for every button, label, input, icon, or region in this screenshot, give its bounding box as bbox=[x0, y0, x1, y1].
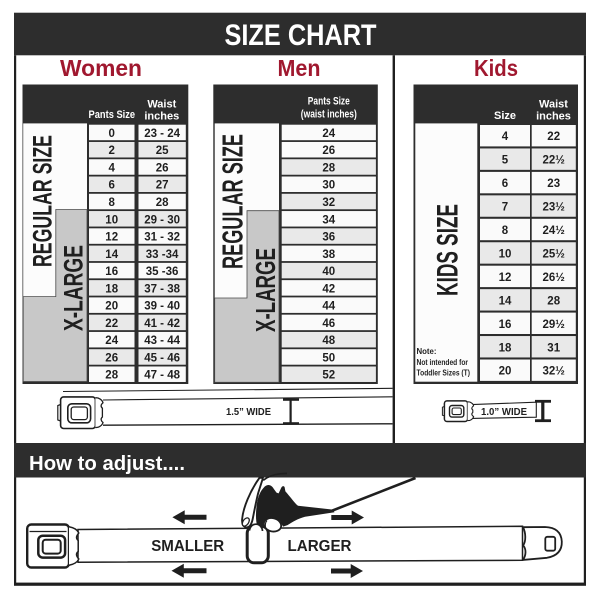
svg-text:32½: 32½ bbox=[543, 366, 566, 378]
svg-text:18: 18 bbox=[105, 283, 118, 295]
svg-text:X-LARGE: X-LARGE bbox=[59, 245, 89, 331]
svg-text:X-LARGE: X-LARGE bbox=[250, 248, 281, 332]
svg-text:5: 5 bbox=[502, 155, 509, 167]
svg-text:Note:: Note: bbox=[417, 346, 437, 356]
svg-text:SIZE CHART: SIZE CHART bbox=[225, 19, 377, 52]
svg-text:39 - 40: 39 - 40 bbox=[144, 301, 180, 313]
svg-text:inches: inches bbox=[144, 111, 179, 123]
svg-text:14: 14 bbox=[499, 295, 512, 307]
svg-text:28: 28 bbox=[547, 295, 560, 307]
svg-text:26: 26 bbox=[156, 162, 169, 174]
svg-text:40: 40 bbox=[322, 266, 335, 278]
svg-text:41 - 42: 41 - 42 bbox=[144, 318, 180, 330]
svg-text:24: 24 bbox=[105, 335, 118, 347]
svg-text:35 -36: 35 -36 bbox=[146, 266, 179, 278]
svg-text:32: 32 bbox=[322, 197, 335, 209]
svg-text:16: 16 bbox=[499, 319, 512, 331]
svg-text:29½: 29½ bbox=[543, 319, 566, 331]
svg-text:23 - 24: 23 - 24 bbox=[144, 128, 180, 140]
svg-text:8: 8 bbox=[108, 197, 115, 209]
svg-text:REGULAR SIZE: REGULAR SIZE bbox=[27, 135, 57, 267]
svg-text:14: 14 bbox=[105, 249, 118, 261]
svg-text:SMALLER: SMALLER bbox=[151, 538, 224, 555]
svg-text:4: 4 bbox=[502, 131, 509, 143]
svg-text:31 - 32: 31 - 32 bbox=[144, 232, 180, 244]
svg-text:22½: 22½ bbox=[543, 155, 566, 167]
svg-text:Waist: Waist bbox=[147, 99, 176, 111]
svg-text:28: 28 bbox=[156, 197, 169, 209]
svg-text:23½: 23½ bbox=[543, 202, 566, 214]
svg-text:28: 28 bbox=[105, 370, 118, 382]
svg-text:26: 26 bbox=[322, 145, 335, 157]
svg-text:16: 16 bbox=[105, 266, 118, 278]
svg-text:LARGER: LARGER bbox=[288, 538, 352, 555]
svg-text:27: 27 bbox=[156, 180, 169, 192]
svg-text:44: 44 bbox=[322, 301, 335, 313]
svg-text:43 - 44: 43 - 44 bbox=[144, 335, 180, 347]
svg-text:Kids: Kids bbox=[474, 55, 518, 81]
svg-text:24½: 24½ bbox=[543, 225, 566, 237]
svg-text:Toddler Sizes (T): Toddler Sizes (T) bbox=[417, 367, 471, 377]
svg-text:22: 22 bbox=[547, 131, 560, 143]
svg-text:36: 36 bbox=[322, 232, 335, 244]
svg-text:8: 8 bbox=[502, 225, 509, 237]
svg-text:33 -34: 33 -34 bbox=[146, 249, 179, 261]
svg-text:26: 26 bbox=[105, 352, 118, 364]
svg-text:7: 7 bbox=[502, 202, 508, 214]
svg-text:10: 10 bbox=[499, 248, 512, 260]
svg-text:0: 0 bbox=[108, 128, 114, 140]
svg-text:24: 24 bbox=[322, 128, 335, 140]
svg-text:12: 12 bbox=[499, 272, 512, 284]
svg-text:20: 20 bbox=[499, 366, 512, 378]
svg-text:10: 10 bbox=[105, 214, 118, 226]
svg-text:48: 48 bbox=[322, 335, 335, 347]
svg-text:REGULAR SIZE: REGULAR SIZE bbox=[218, 134, 250, 269]
svg-text:KIDS SIZE: KIDS SIZE bbox=[432, 204, 465, 296]
svg-text:1.0” WIDE: 1.0” WIDE bbox=[481, 406, 527, 418]
svg-text:How to adjust....: How to adjust.... bbox=[29, 453, 185, 475]
svg-text:Waist: Waist bbox=[539, 99, 568, 111]
svg-text:25½: 25½ bbox=[543, 248, 566, 260]
svg-text:Pants Size: Pants Size bbox=[89, 109, 136, 121]
svg-text:18: 18 bbox=[499, 342, 512, 354]
svg-text:20: 20 bbox=[105, 301, 118, 313]
svg-text:46: 46 bbox=[322, 318, 335, 330]
svg-text:Men: Men bbox=[278, 55, 321, 81]
svg-text:26½: 26½ bbox=[543, 272, 566, 284]
svg-text:34: 34 bbox=[322, 214, 335, 226]
svg-text:52: 52 bbox=[322, 370, 335, 382]
svg-text:Pants Size: Pants Size bbox=[308, 95, 350, 107]
svg-text:4: 4 bbox=[108, 162, 115, 174]
svg-text:47 - 48: 47 - 48 bbox=[144, 370, 180, 382]
svg-text:inches: inches bbox=[536, 111, 571, 123]
svg-text:45 - 46: 45 - 46 bbox=[144, 352, 180, 364]
svg-text:2: 2 bbox=[108, 145, 114, 157]
svg-text:42: 42 bbox=[322, 283, 335, 295]
svg-text:37 - 38: 37 - 38 bbox=[144, 283, 180, 295]
svg-text:28: 28 bbox=[322, 162, 335, 174]
svg-text:Size: Size bbox=[494, 110, 516, 122]
svg-text:6: 6 bbox=[108, 180, 114, 192]
svg-text:29 - 30: 29 - 30 bbox=[144, 214, 180, 226]
svg-text:6: 6 bbox=[502, 178, 508, 190]
svg-text:1.5” WIDE: 1.5” WIDE bbox=[226, 406, 271, 418]
svg-text:Not intended for: Not intended for bbox=[417, 357, 469, 367]
svg-text:38: 38 bbox=[322, 249, 335, 261]
svg-text:23: 23 bbox=[547, 178, 560, 190]
svg-text:Women: Women bbox=[60, 55, 142, 81]
svg-text:(waist inches): (waist inches) bbox=[301, 109, 357, 121]
svg-text:50: 50 bbox=[322, 352, 335, 364]
svg-text:30: 30 bbox=[322, 180, 335, 192]
svg-text:22: 22 bbox=[105, 318, 118, 330]
svg-text:25: 25 bbox=[156, 145, 169, 157]
svg-text:31: 31 bbox=[547, 342, 560, 354]
svg-text:12: 12 bbox=[105, 232, 118, 244]
